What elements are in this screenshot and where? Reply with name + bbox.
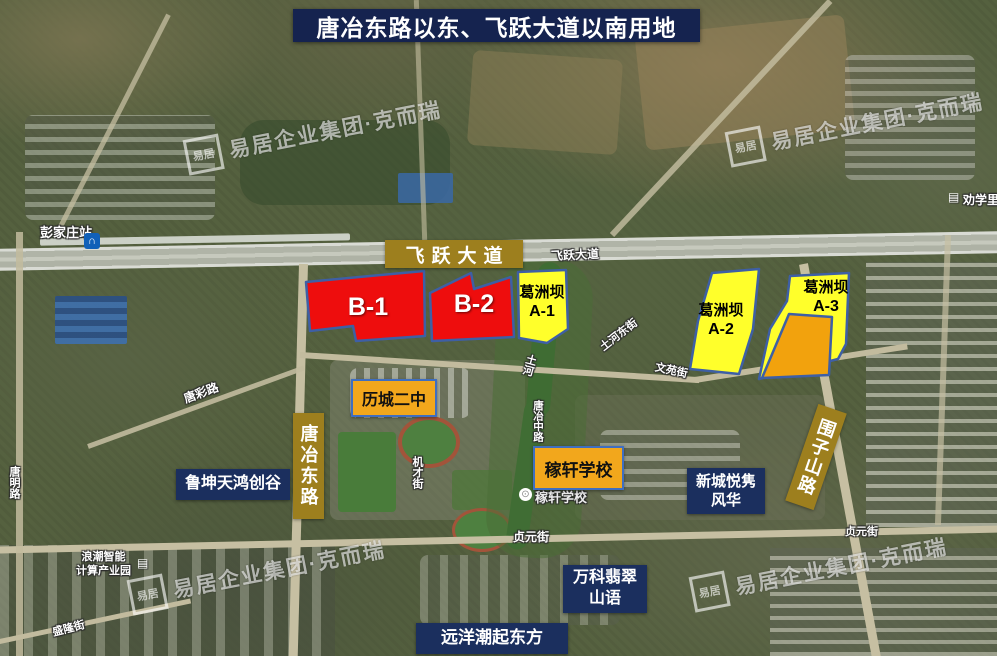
maplabel-quanxueli: 劝学里: [963, 191, 997, 208]
watermark-seal-icon: 易居: [183, 133, 225, 175]
parcel-label-b2: B-2: [442, 290, 506, 319]
parcel-code: A-3: [797, 297, 855, 316]
road-label-feiyue-avenue: 飞跃大道: [385, 240, 523, 268]
maplabel-tangming-road: 唐明路: [6, 466, 22, 499]
maplabel-jicai-street: 机才街: [409, 456, 425, 489]
maplabel-zhenyuan-street-east: 贞元街: [845, 523, 878, 539]
watermark-seal-icon: 易居: [725, 125, 767, 167]
poi-yuanyang-chaoqi: 远洋潮起东方: [416, 623, 568, 654]
building-icon: ▤: [948, 190, 959, 204]
poi-line: 万科翡翠: [573, 568, 637, 589]
parcel-code: A-1: [514, 302, 570, 321]
road-label-tangye-east: 唐冶东路: [293, 413, 324, 519]
poi-vanke-feicui: 万科翡翠 山语: [563, 565, 647, 613]
poi-jiaxuan-school: 稼轩学校: [533, 446, 624, 490]
watermark-seal-icon: 易居: [127, 573, 169, 615]
poi-licheng-no2-school: 历城二中: [351, 379, 437, 417]
page-title: 唐冶东路以东、飞跃大道以南用地: [293, 9, 700, 42]
parcel-name: 葛洲坝: [692, 302, 750, 320]
maplabel-feiyue-road: 飞跃大道: [551, 245, 600, 264]
poi-line: 风华: [711, 491, 741, 511]
parcel-name: 葛洲坝: [797, 279, 855, 297]
metro-icon: ∩: [84, 233, 100, 249]
maplabel-zhenyuan-street-west: 贞元街: [513, 528, 549, 545]
building-icon: ▤: [137, 556, 148, 570]
poi-lukun-tianhong: 鲁坤天鸿创谷: [176, 469, 290, 500]
maplabel-tangye-middle-road: 唐冶中路: [531, 400, 546, 442]
poi-xincheng-yuejun: 新城悦隽 风华: [687, 468, 765, 514]
parcel-label-a3: 葛洲坝 A-3: [797, 279, 855, 316]
parcel-label-b1: B-1: [336, 293, 400, 322]
poi-line: 新城悦隽: [696, 472, 756, 492]
parcel-label-a2: 葛洲坝 A-2: [692, 302, 750, 339]
poi-line: 山语: [589, 589, 621, 610]
maplabel-langchao-park: 浪潮智能 计算产业园: [76, 551, 131, 579]
parcel-code: A-2: [692, 320, 750, 339]
school-poi-icon: ⊙: [519, 488, 532, 501]
watermark-seal-icon: 易居: [689, 570, 731, 612]
maplabel-line: 浪潮智能: [76, 551, 131, 565]
maplabel-line: 计算产业园: [76, 565, 131, 579]
parcel-name: 葛洲坝: [514, 284, 570, 302]
parcel-label-a1: 葛洲坝 A-1: [514, 284, 570, 321]
satellite-map: B-1 B-2 葛洲坝 A-1 葛洲坝 A-2 葛洲坝 A-3 飞跃大道 唐冶东…: [0, 0, 997, 656]
